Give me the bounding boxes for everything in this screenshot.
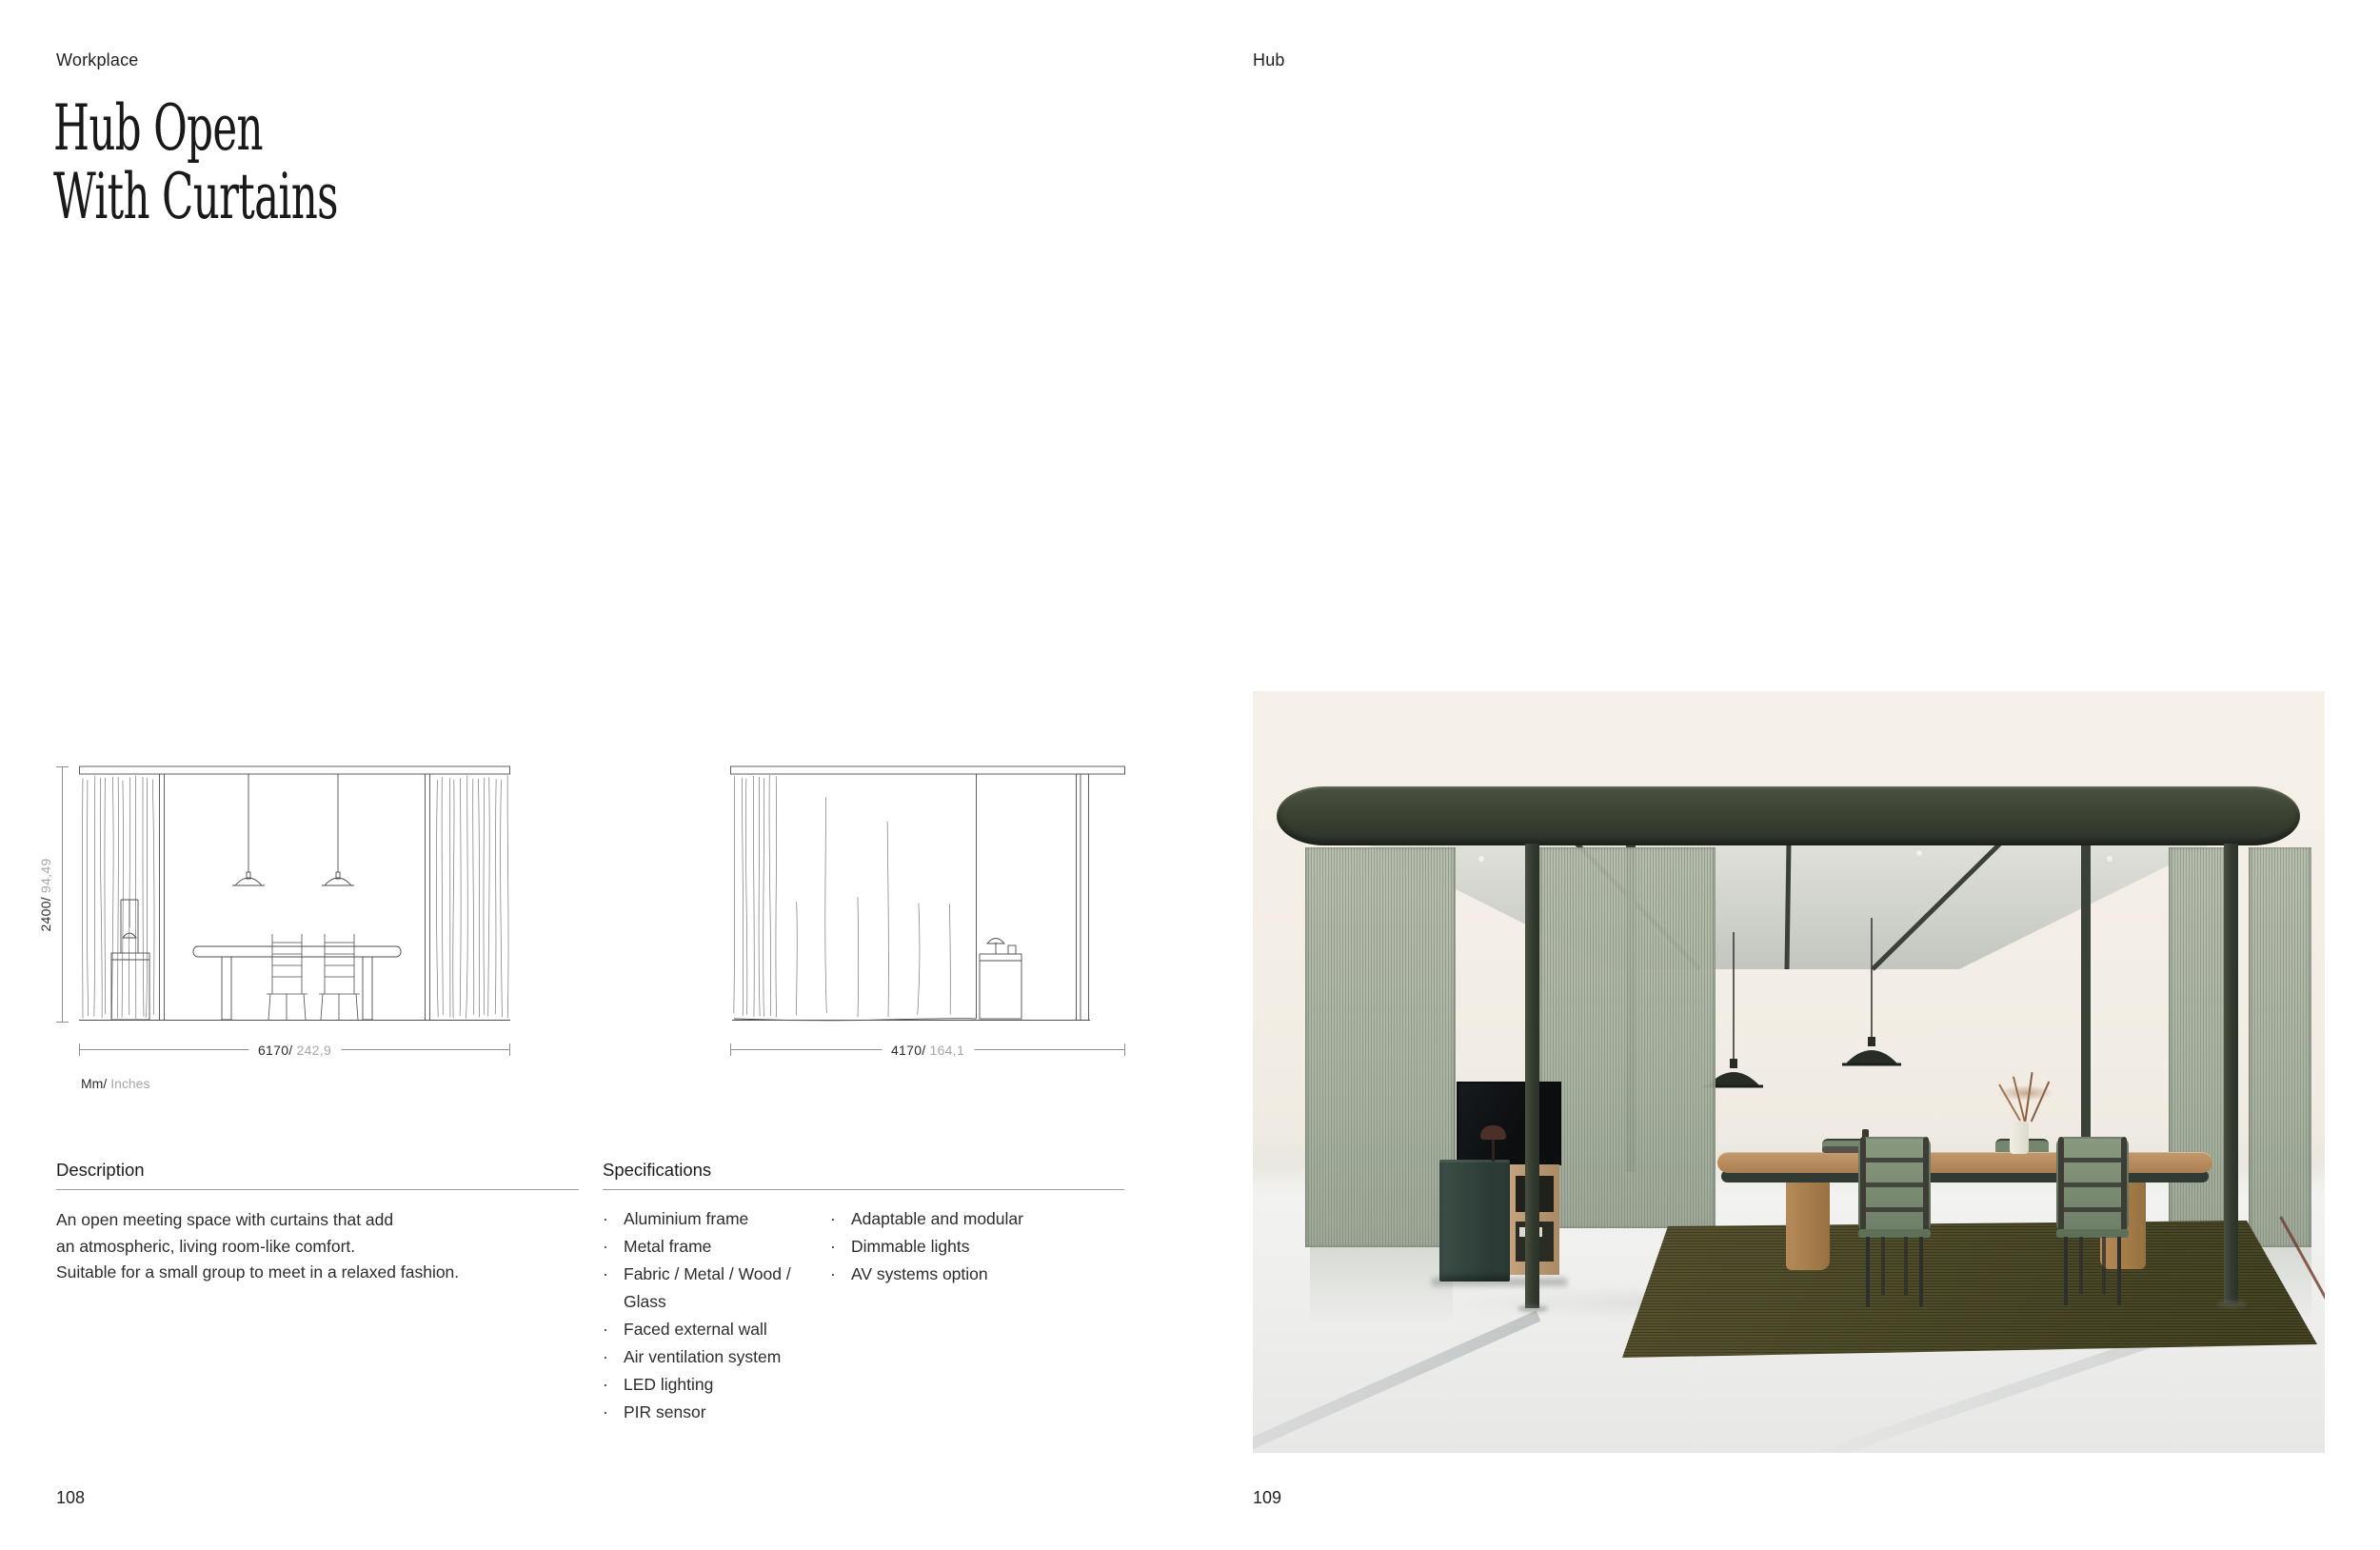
bullet-icon: · (603, 1261, 624, 1288)
table-lamp-stem (1492, 1139, 1495, 1162)
specifications-column-1: ·Aluminium frame·Metal frame·Fabric / Me… (603, 1205, 826, 1426)
specifications-column-2: ·Adaptable and modular·Dimmable lights·A… (830, 1205, 1125, 1288)
bullet-icon: · (830, 1261, 851, 1288)
page-number-right: 109 (1253, 1488, 1281, 1508)
specifications-rule (603, 1189, 1124, 1190)
page-title-line2: With Curtains (53, 160, 338, 233)
spec-label: PIR sensor (624, 1399, 706, 1426)
table-top (1717, 1152, 2212, 1173)
technical-drawing-side (730, 765, 1125, 1023)
post-front-right (2224, 844, 2238, 1303)
spec-label: LED lighting (624, 1371, 713, 1399)
spec-label: AV systems option (851, 1261, 988, 1288)
spec-item: ·Glass (603, 1288, 826, 1316)
spec-item: ·LED lighting (603, 1371, 826, 1399)
spec-label: Adaptable and modular (851, 1205, 1023, 1233)
description-rule (56, 1189, 579, 1190)
left-page: Workplace Hub Open With Curtains (0, 0, 1190, 1550)
spec-item: ·Aluminium frame (603, 1205, 826, 1233)
dimension-width-side: 4170/164,1 (730, 1043, 1125, 1056)
bullet-icon: · (603, 1316, 624, 1343)
rug (1619, 1215, 2319, 1362)
dimension-height: 2400/94,49 (62, 766, 63, 1023)
spec-label: Fabric / Metal / Wood / (624, 1261, 791, 1288)
spec-label: Glass (624, 1288, 666, 1316)
dimension-height-label: 2400/94,49 (38, 858, 53, 931)
spec-label: Metal frame (624, 1233, 711, 1261)
spec-item: ·Dimmable lights (830, 1233, 1125, 1261)
chair-front-left (1858, 1137, 1931, 1310)
spec-label: Air ventilation system (624, 1343, 781, 1371)
cabinet-body (1439, 1160, 1510, 1282)
bullet-icon: · (603, 1371, 624, 1399)
spec-label: Aluminium frame (624, 1205, 748, 1233)
bullet-icon: · (603, 1205, 624, 1233)
bullet-icon: · (603, 1343, 624, 1371)
page-title-line1: Hub Open (53, 91, 263, 165)
spec-item: ·Fabric / Metal / Wood / (603, 1261, 826, 1288)
curtain-far-left (1305, 847, 1456, 1247)
bullet-icon: · (830, 1205, 851, 1233)
page-number-left: 108 (56, 1488, 85, 1508)
dimension-width-front-label: 6170/242,9 (248, 1043, 341, 1058)
chair-front-right (2056, 1137, 2129, 1308)
spec-label: Faced external wall (624, 1316, 767, 1343)
text-line: An open meeting space with curtains that… (56, 1207, 589, 1234)
description-text: An open meeting space with curtains that… (56, 1207, 589, 1286)
post-front-left (1525, 844, 1539, 1308)
text-line: an atmospheric, living room-like comfort… (56, 1234, 589, 1261)
spec-item: ·AV systems option (830, 1261, 1125, 1288)
units-label: Mm/Inches (81, 1076, 149, 1091)
spec-item: ·Adaptable and modular (830, 1205, 1125, 1233)
category-label: Workplace (56, 50, 139, 70)
vase (2010, 1122, 2029, 1154)
product-render (1253, 691, 2325, 1453)
table-leg-left (1786, 1180, 1830, 1270)
post-back-right (2081, 845, 2091, 1172)
curtain-far-right (2249, 847, 2311, 1247)
spec-label: Dimmable lights (851, 1233, 969, 1261)
post-contact-shadow-left (1517, 1305, 1548, 1312)
text-line: Suitable for a small group to meet in a … (56, 1260, 589, 1286)
canopy (1277, 786, 2300, 845)
dimension-width-front: 6170/242,9 (79, 1043, 510, 1056)
technical-drawing-front (79, 765, 510, 1023)
drawing-chairs (267, 934, 360, 1020)
bullet-icon: · (830, 1233, 851, 1261)
spec-item: ·Faced external wall (603, 1316, 826, 1343)
table-lamp-shade (1480, 1125, 1506, 1140)
spec-item: ·Air ventilation system (603, 1343, 826, 1371)
spec-item: ·PIR sensor (603, 1399, 826, 1426)
bullet-icon: · (603, 1233, 624, 1261)
bullet-icon: · (603, 1399, 624, 1426)
spec-item: ·Metal frame (603, 1233, 826, 1261)
canopy-ceiling (1348, 842, 2233, 1089)
post-contact-shadow-right (2216, 1301, 2247, 1307)
dimension-width-side-label: 4170/164,1 (882, 1043, 974, 1058)
description-heading: Description (56, 1160, 145, 1181)
dried-branches (1986, 1070, 2062, 1125)
tv-screen (1457, 1082, 1561, 1165)
page-title: Hub Open With Curtains (53, 94, 485, 231)
specifications-heading: Specifications (603, 1160, 711, 1181)
category-label-right: Hub (1253, 50, 1285, 70)
curtain-left (1538, 847, 1716, 1228)
catalog-spread: Workplace Hub Open With Curtains (0, 0, 2380, 1550)
